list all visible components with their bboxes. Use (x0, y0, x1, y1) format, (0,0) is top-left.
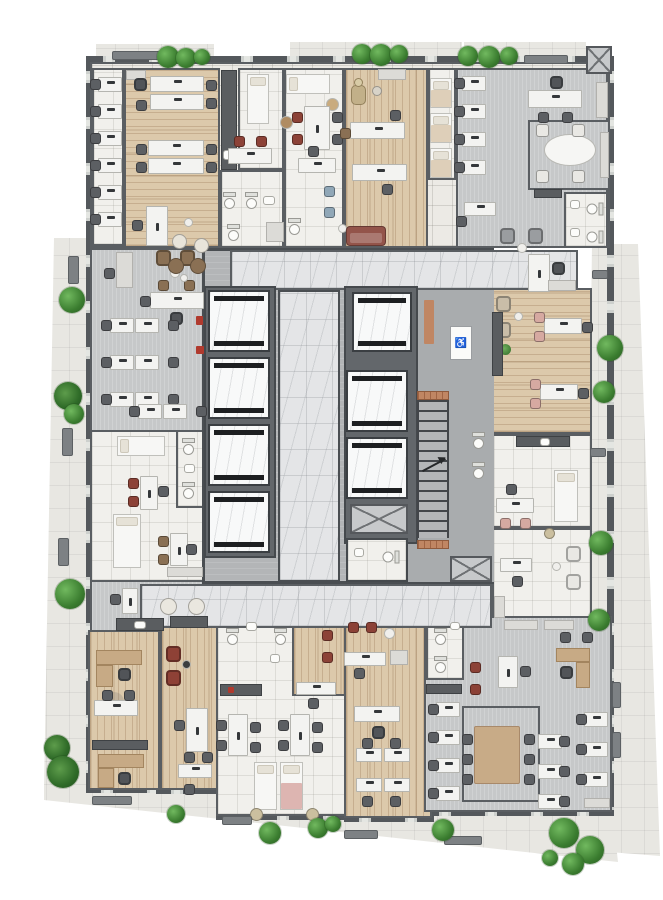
toilet-tank (434, 656, 447, 661)
plant-icon (55, 579, 85, 609)
toilet-tank (599, 203, 604, 216)
dental-chair-body (351, 85, 366, 105)
furn-desk (150, 292, 204, 309)
furn-chair (102, 690, 113, 701)
furn-desk (148, 158, 204, 174)
furn-wood-desk (96, 650, 142, 665)
toilet-bowl (246, 198, 257, 209)
monitor-icon (471, 108, 479, 111)
accessible-wc-sign: ♿ (450, 326, 472, 360)
furn-chair (524, 754, 535, 765)
furn-counter (92, 740, 148, 750)
furn-wood-table (474, 726, 520, 784)
toilet-tank (226, 628, 239, 633)
furn-chair (428, 760, 439, 771)
furn-workstation-desk (584, 742, 608, 757)
furn-sink (354, 548, 364, 557)
bed-pillow (120, 439, 129, 453)
staircase (417, 400, 449, 538)
dental-chair-headrest (354, 78, 363, 87)
furn-pchair (530, 379, 541, 390)
furn-chair (206, 162, 217, 173)
monitor-icon (362, 655, 370, 658)
elevator-door-band (214, 475, 264, 480)
furn-chair (428, 704, 439, 715)
furn-stool (188, 598, 205, 615)
furn-chair (576, 714, 587, 725)
furn-chair (454, 78, 465, 89)
elevator-door-band (352, 376, 402, 381)
plant-icon (542, 850, 558, 866)
furn-desk (528, 254, 550, 292)
furn-sofa (346, 226, 386, 246)
plant-icon (194, 49, 210, 65)
furn-chair (90, 106, 101, 117)
furn-blchair (324, 207, 335, 218)
elevator-door-band (214, 363, 264, 368)
furn-desk (500, 558, 532, 572)
bed-blanket (431, 160, 451, 177)
furn-desk (540, 384, 578, 400)
elevator-car (208, 424, 270, 486)
furn-workstation-desk (584, 772, 608, 787)
furn-chair (101, 320, 112, 331)
furn-wood-desk (98, 754, 144, 768)
monitor-icon (313, 685, 321, 688)
plant-icon (597, 335, 623, 361)
furn-sink (270, 654, 280, 663)
furn-chair (562, 112, 573, 123)
furn-toilet (288, 218, 301, 236)
plant-icon (59, 287, 85, 313)
monitor-icon (174, 80, 182, 83)
furn-rchair (366, 622, 377, 633)
monitor-icon (513, 561, 521, 564)
monitor-icon (113, 704, 121, 707)
furn-desk (228, 714, 248, 756)
furn-wood-desk (556, 648, 590, 662)
furn-workstation-desk (436, 702, 460, 717)
monitor-icon (144, 359, 152, 362)
furn-pchair (534, 312, 545, 323)
furn-cabinet (378, 69, 406, 80)
toilet-tank (472, 462, 485, 467)
toilet-bowl (473, 468, 484, 479)
furn-sink (570, 228, 580, 237)
service-shaft (586, 46, 612, 74)
furn-sink (570, 200, 580, 209)
bench (524, 55, 568, 64)
furn-chair (278, 720, 289, 731)
furn-workstation-desk (436, 730, 460, 745)
furn-chair (524, 774, 535, 785)
furn-cabinet (504, 620, 538, 630)
furn-chair (308, 146, 319, 157)
plant-icon (500, 47, 518, 65)
furn-rchair (470, 684, 481, 695)
furn-chair (362, 796, 373, 807)
furn-sink (184, 464, 195, 473)
furn-toilet (472, 432, 485, 450)
furn-desk (186, 708, 208, 752)
furn-chair (140, 296, 151, 307)
furn-desk (94, 700, 138, 716)
monitor-icon (119, 359, 127, 362)
furn-workstation-desk (98, 131, 122, 146)
furn-bed (117, 436, 165, 456)
monitor-icon (547, 738, 555, 741)
furn-wood-desk (576, 662, 590, 688)
furn-exec-chair (552, 262, 565, 275)
furn-bed (430, 113, 452, 143)
monitor-icon (394, 781, 402, 784)
furn-workstation-desk (138, 404, 162, 419)
furn-chair (132, 220, 143, 231)
elevator-car (208, 290, 270, 352)
monitor-icon (507, 669, 510, 677)
bed-pillow (433, 116, 449, 125)
bench (58, 538, 69, 566)
furn-desk (150, 94, 204, 110)
bed-blanket (281, 783, 302, 809)
toilet-bowl (435, 634, 446, 645)
furn-desk (122, 588, 138, 614)
monitor-icon (107, 108, 115, 111)
plant-icon (167, 805, 185, 823)
monitor-icon (174, 98, 182, 101)
elevator-door-band (358, 341, 406, 346)
monitor-icon (107, 189, 115, 192)
furn-stool (160, 598, 177, 615)
furn-bed (113, 514, 141, 568)
furn-bchair (158, 536, 169, 547)
furn-desk (140, 476, 158, 510)
furn-desk (350, 122, 405, 139)
furn-counter (534, 189, 562, 198)
furn-chair (428, 732, 439, 743)
monitor-icon (377, 169, 385, 172)
plant-icon (432, 819, 454, 841)
monitor-icon (192, 767, 200, 770)
furn-rchair (234, 136, 245, 147)
elevator-car (208, 491, 270, 553)
furn-chair (506, 484, 517, 495)
service-shaft (450, 556, 492, 582)
furn-workstation-desk (436, 786, 460, 801)
elevator-car (352, 292, 412, 352)
furn-stool (544, 528, 555, 539)
furn-chair (560, 632, 571, 643)
monitor-icon (173, 144, 181, 147)
furn-cabinet (544, 620, 574, 630)
furn-chair (582, 322, 593, 333)
furn-chair (101, 357, 112, 368)
furn-chair (206, 98, 217, 109)
furn-exec-chair (134, 78, 147, 91)
furn-chair (428, 788, 439, 799)
furn-workstation-desk (98, 77, 122, 92)
bed-pillow (557, 473, 575, 482)
furn-desk (228, 148, 272, 164)
furn-stool (172, 234, 187, 249)
elevator-door-band (214, 542, 264, 547)
monitor-icon (471, 164, 479, 167)
monitor-icon (172, 408, 180, 411)
monitor-icon (593, 746, 601, 749)
plant-icon (176, 48, 196, 68)
toilet-bowl (228, 230, 239, 241)
furn-exec-chair (118, 772, 131, 785)
furn-workstation-desk (110, 318, 134, 333)
furn-toilet (245, 192, 258, 210)
monitor-icon (107, 81, 115, 84)
furn-sink (540, 438, 550, 446)
furn-chair (462, 774, 473, 785)
furn-sink (246, 622, 257, 631)
furn-chair (454, 106, 465, 117)
furn-bchair (158, 280, 169, 291)
bed-blanket (431, 90, 451, 107)
furn-chair (184, 784, 195, 795)
furn-bed (280, 762, 303, 810)
furn-chair (576, 774, 587, 785)
furn-round-table (184, 218, 193, 227)
furn-chair (559, 736, 570, 747)
furn-workstation-desk (436, 758, 460, 773)
furn-stool (372, 86, 382, 96)
toilet-bowl (224, 198, 235, 209)
bench (612, 732, 621, 758)
furn-pchair (520, 518, 531, 529)
furn-chair (101, 394, 112, 405)
furn-chair (110, 594, 121, 605)
furn-armchair (496, 296, 511, 312)
elevator-car (346, 370, 408, 432)
monitor-icon (374, 710, 382, 713)
furn-round-table (384, 628, 395, 639)
floor-plan-scene: ♿ (0, 0, 663, 900)
furn-workstation-desk (462, 104, 486, 119)
furn-accent (196, 346, 204, 354)
toilet-tank (472, 432, 485, 437)
furn-pchair (530, 398, 541, 409)
bed-pillow (433, 151, 449, 160)
monitor-icon (107, 216, 115, 219)
monitor-icon (547, 768, 555, 771)
elevator-door-band (352, 443, 402, 448)
furn-toilet (274, 628, 287, 646)
bed-pillow (116, 517, 138, 526)
furn-bed (430, 78, 452, 108)
furn-accent (196, 316, 203, 325)
plant-icon (352, 44, 372, 64)
furn-chair (559, 796, 570, 807)
furn-rchair (348, 622, 359, 633)
monitor-icon (314, 162, 322, 165)
plant-icon (593, 381, 615, 403)
plant-icon (549, 818, 579, 848)
furn-cabinet (390, 650, 408, 665)
sofa-seat (350, 233, 382, 243)
furn-armchair (566, 574, 581, 590)
furn-workstation-desk (110, 392, 134, 407)
toilet-bowl (473, 438, 484, 449)
furn-pchair (534, 331, 545, 342)
furn-chair (250, 722, 261, 733)
toilet-bowl (383, 552, 394, 563)
toilet-bowl (183, 488, 194, 499)
furn-desk (146, 206, 168, 246)
toilet-tank (227, 224, 240, 229)
furn-desk (498, 656, 518, 688)
furn-desk (496, 498, 534, 513)
furn-toilet (223, 192, 236, 210)
furn-desk (296, 682, 336, 695)
monitor-icon (144, 322, 152, 325)
furn-rchair (470, 662, 481, 673)
monitor-icon (174, 297, 182, 300)
stair-landing-strip (417, 540, 449, 549)
elevator-door-band (214, 430, 264, 435)
furn-stool (190, 258, 206, 274)
furn-chair (158, 486, 169, 497)
monitor-icon (552, 95, 560, 98)
monitor-icon (394, 751, 402, 754)
furn-desk (304, 106, 330, 150)
bench (92, 796, 132, 805)
furn-chair (362, 738, 373, 749)
furn-chair (216, 740, 227, 751)
monitor-icon (156, 223, 159, 231)
furn-chair (90, 79, 101, 90)
monitor-icon (173, 162, 181, 165)
monitor-icon (445, 790, 453, 793)
furn-oval-table (544, 134, 596, 166)
furn-wood-desk (98, 768, 114, 788)
furn-chair (578, 388, 589, 399)
furn-cabinet (600, 132, 609, 178)
furn-rchair (256, 136, 267, 147)
toilet-tank (395, 551, 400, 564)
plant-icon (390, 45, 408, 63)
monitor-icon (129, 598, 132, 606)
furn-chair (390, 110, 401, 121)
elevator-door-band (214, 341, 264, 346)
elevator-door-band (358, 298, 406, 303)
monitor-icon (237, 732, 240, 740)
toilet-tank (182, 438, 195, 443)
furn-accent (424, 300, 434, 344)
furn-desk (290, 714, 310, 756)
toilet-tank (245, 192, 258, 197)
furn-desk (344, 652, 386, 666)
furn-desk (464, 202, 496, 216)
monitor-icon (148, 490, 151, 498)
plant-icon (370, 44, 392, 66)
furn-desk (178, 764, 212, 778)
furn-toilet (382, 551, 400, 564)
furn-wood-desk (96, 665, 113, 687)
furn-desk (352, 164, 407, 181)
furn-rchair (322, 630, 333, 641)
furn-counter (426, 684, 462, 694)
monitor-icon (445, 734, 453, 737)
furn-armchair (166, 646, 181, 662)
monitor-icon (247, 152, 255, 155)
furn-chair (136, 100, 147, 111)
monitor-icon (471, 136, 479, 139)
monitor-icon (196, 727, 199, 735)
bench (222, 816, 252, 825)
furn-chair (462, 734, 473, 745)
monitor-icon (512, 502, 520, 505)
furn-armchair (166, 670, 181, 686)
monitor-icon (477, 205, 485, 208)
furn-chair (216, 720, 227, 731)
elevator-door-band (214, 497, 264, 502)
furn-rchair (322, 652, 333, 663)
furn-chair (524, 734, 535, 745)
furn-wchair (536, 170, 549, 183)
furn-chair (129, 406, 140, 417)
furn-workstation-desk (110, 355, 134, 370)
furn-stool (168, 258, 184, 274)
furn-chair (206, 80, 217, 91)
plant-icon (64, 404, 84, 424)
furn-workstation-desk (462, 76, 486, 91)
monitor-icon (593, 776, 601, 779)
bed-pillow (433, 81, 449, 90)
furn-chair (206, 144, 217, 155)
furn-exec-chair (550, 76, 563, 89)
furn-round-table (517, 243, 527, 253)
furn-armchair (566, 546, 581, 562)
monitor-icon (560, 322, 568, 325)
toilet-bowl (275, 634, 286, 645)
furn-chair (312, 722, 323, 733)
furn-bchair (158, 554, 169, 565)
furn-desk (384, 778, 410, 792)
furn-toilet (182, 438, 195, 456)
furn-chair (202, 752, 213, 763)
toilet-tank (434, 628, 447, 633)
toilet-tank (599, 231, 604, 244)
plant-icon (458, 46, 478, 66)
bench (612, 682, 621, 708)
furn-chair (136, 144, 147, 155)
furn-blchair (324, 186, 335, 197)
furn-chair (278, 740, 289, 751)
furn-chair (582, 632, 593, 643)
monitor-icon (445, 762, 453, 765)
toilet-bowl (587, 204, 598, 215)
bench (590, 448, 606, 457)
monitor-icon (593, 716, 601, 719)
furn-chair (538, 112, 549, 123)
furn-sink (450, 622, 460, 630)
bed-pillow (250, 77, 266, 86)
furn-sink (134, 621, 146, 629)
furn-chair (136, 162, 147, 173)
monitor-icon (547, 798, 555, 801)
bench (344, 830, 378, 839)
furn-bed (286, 74, 330, 94)
furn-desk (356, 778, 382, 792)
furn-chair (456, 216, 467, 227)
toilet-tank (288, 218, 301, 223)
furn-rchair (128, 496, 139, 507)
plant-icon (589, 531, 613, 555)
